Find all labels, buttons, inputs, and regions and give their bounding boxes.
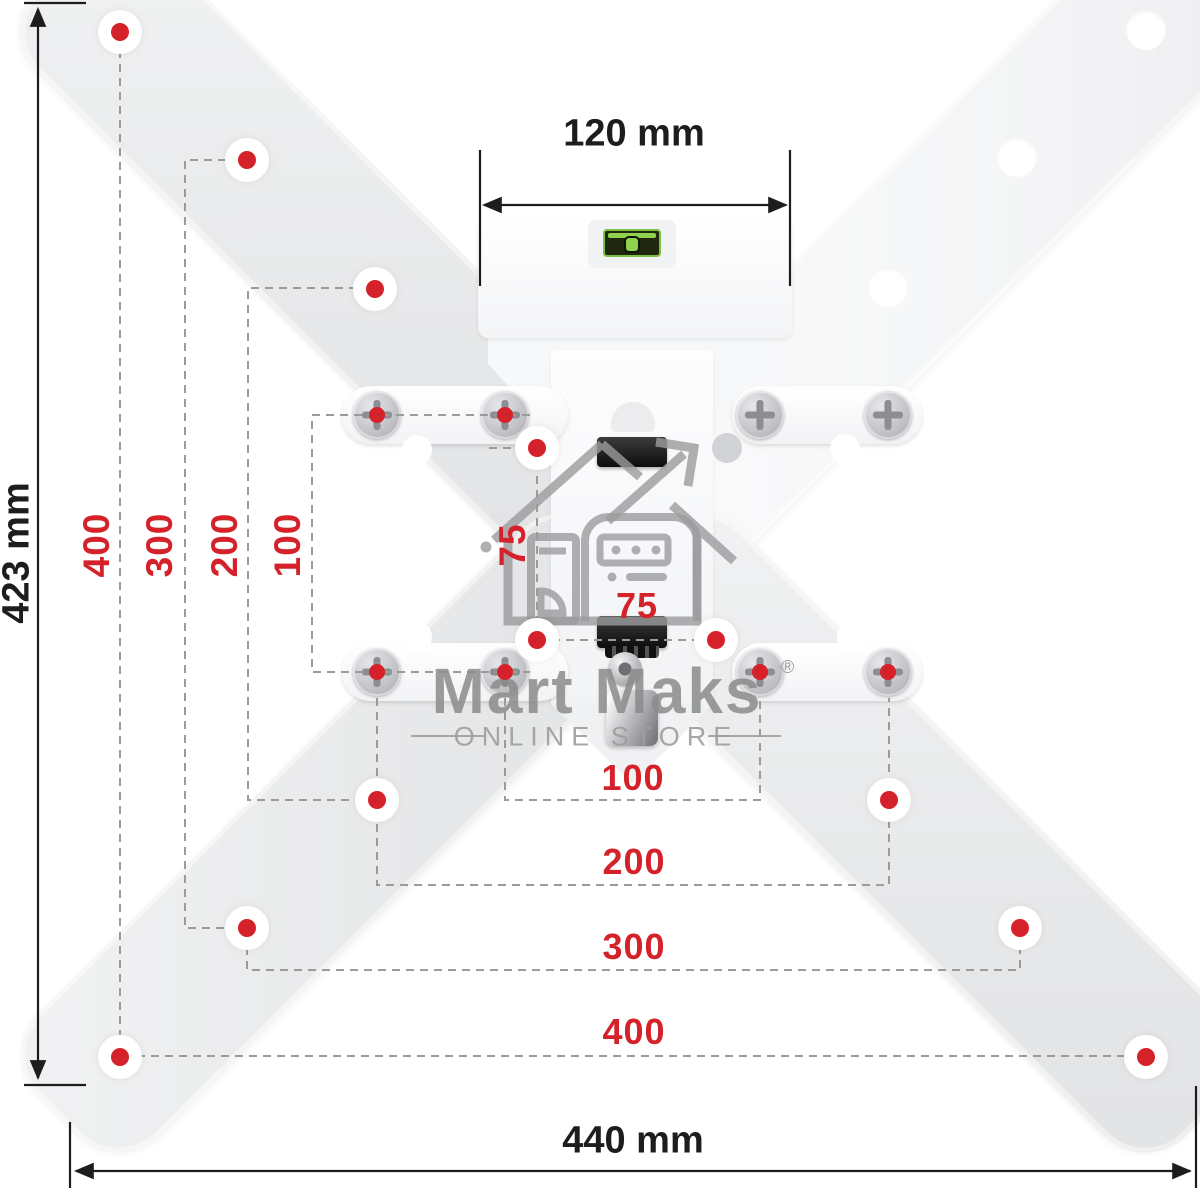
bubble-level-icon	[603, 229, 661, 257]
vesa-horizontal-label-100: 100	[601, 757, 664, 799]
brand-tagline: ONLINE STORE	[454, 722, 739, 753]
brand-watermark-text: Mart Maks	[432, 654, 763, 728]
screw-center-marker	[369, 664, 385, 680]
vesa-vertical-label-300: 300	[139, 513, 181, 578]
tagline-right-line	[708, 735, 781, 737]
vesa-hole-marker	[98, 1035, 142, 1079]
phillips-screw-icon	[736, 391, 784, 439]
arm-hole	[402, 435, 432, 465]
vesa-hole	[868, 267, 908, 307]
vesa-hole-marker	[998, 906, 1042, 950]
vesa-horizontal-label-75: 75	[616, 585, 658, 627]
vesa-hole	[997, 137, 1037, 177]
dim-bottom-width-label: 440 mm	[562, 1120, 704, 1163]
vesa-hole-marker	[867, 778, 911, 822]
vesa-vertical-label-200: 200	[204, 513, 246, 578]
tilt-clamp-top-icon	[597, 437, 667, 467]
vesa-hole-marker	[515, 618, 559, 662]
tagline-left-line	[411, 735, 484, 737]
vesa-hole-marker	[225, 906, 269, 950]
vesa-vertical-label-400: 400	[76, 513, 118, 578]
vesa-hole-marker	[355, 778, 399, 822]
arm-hole	[712, 433, 742, 463]
tv-mount-dimension-diagram: Mart Maks ® ONLINE STORE 400 300 200 100…	[0, 0, 1200, 1188]
vesa-hole	[1126, 10, 1166, 50]
vesa-horizontal-label-300: 300	[602, 926, 665, 968]
vesa-hole-marker	[1124, 1035, 1168, 1079]
vesa-vertical-label-100: 100	[267, 513, 309, 578]
registered-mark: ®	[781, 657, 794, 678]
vesa-hole-marker	[694, 618, 738, 662]
vesa-hole-marker	[515, 426, 559, 470]
vesa-vertical-label-75: 75	[492, 523, 534, 566]
arm-hole	[830, 434, 860, 464]
phillips-cross	[885, 400, 892, 430]
vesa-hole-marker	[225, 138, 269, 182]
screw-center-marker	[497, 407, 513, 423]
screw-center-marker	[880, 664, 896, 680]
arm-hole	[837, 622, 867, 652]
phillips-cross	[757, 400, 764, 430]
vesa-horizontal-label-400: 400	[602, 1011, 665, 1053]
arm-hole	[402, 622, 432, 652]
screw-center-marker	[497, 664, 513, 680]
dim-top-width-label: 120 mm	[563, 113, 705, 156]
screw-center-marker	[369, 407, 385, 423]
vesa-horizontal-label-200: 200	[602, 841, 665, 883]
vesa-hole-marker	[98, 10, 142, 54]
vesa-hole-marker	[353, 267, 397, 311]
screw-center-marker	[752, 664, 768, 680]
dim-left-height-label: 423 mm	[0, 482, 39, 624]
phillips-screw-icon	[864, 391, 912, 439]
